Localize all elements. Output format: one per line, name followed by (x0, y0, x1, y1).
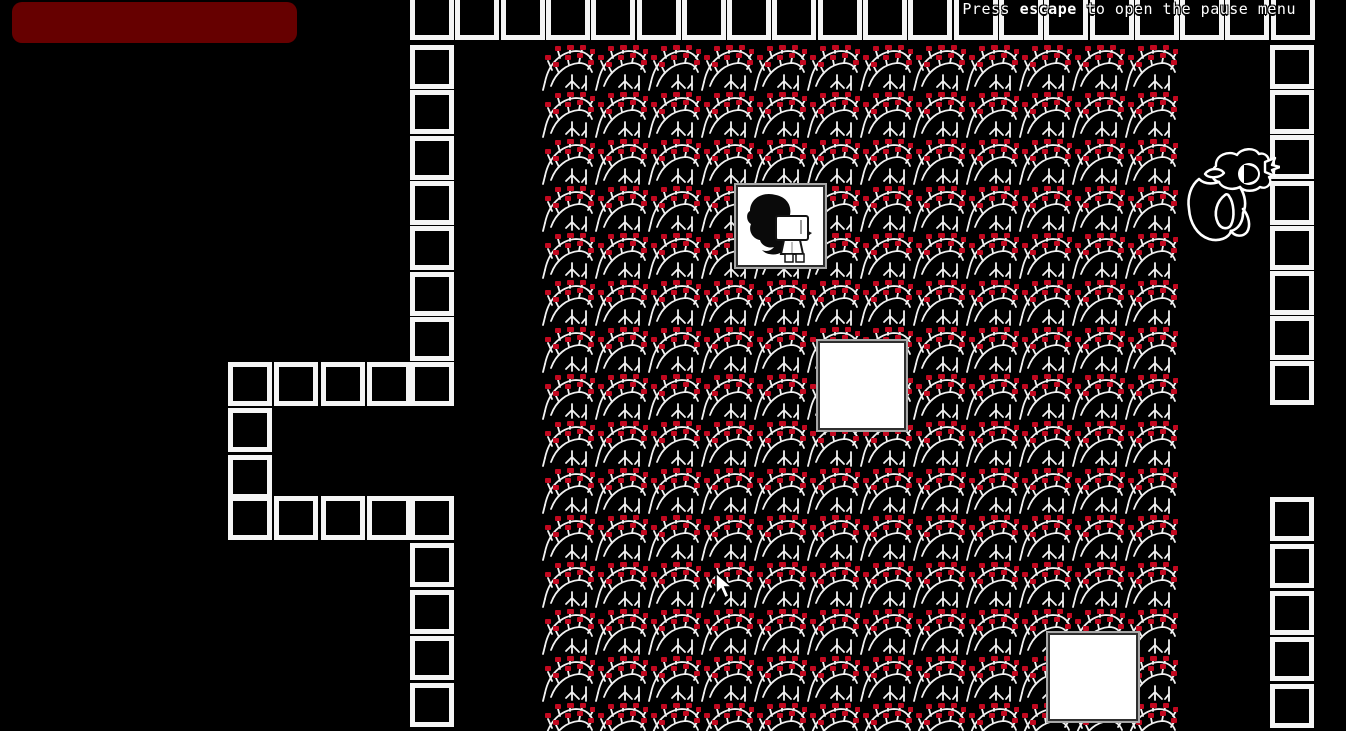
game-viewport[interactable]: { "screen": {"width": 1346, "height": 73… (0, 0, 1346, 731)
wall-tile-right-wall-upper (1270, 316, 1314, 360)
wall-tile-alcove-top-row (274, 362, 318, 406)
wall-tile-alcove-top-row (367, 362, 411, 406)
health-bar (12, 2, 297, 43)
wall-tile-alcove-left-column (228, 408, 272, 452)
wall-tile-right-wall-upper (1270, 361, 1314, 405)
pause-hint-key: escape (1020, 0, 1077, 18)
wall-tile-alcove-bottom-row (367, 496, 411, 540)
wall-tile-top-wall-row (546, 0, 590, 40)
wall-tile-left-wall-lower (410, 543, 454, 587)
wall-tile-left-wall-lower (410, 683, 454, 727)
wall-tile-alcove-bottom-row (274, 496, 318, 540)
pause-hint: Press escape to open the pause menu (962, 1, 1296, 18)
wall-tile-alcove-left-column (228, 455, 272, 499)
wall-tile-left-wall-upper (410, 362, 454, 406)
pause-hint-prefix: Press (962, 0, 1019, 18)
white-box-bottom[interactable] (1048, 633, 1138, 721)
wall-tile-top-wall-row (591, 0, 635, 40)
wall-tile-left-wall-upper (410, 272, 454, 316)
wall-tile-top-wall-row (908, 0, 952, 40)
wall-tile-left-wall-upper (410, 45, 454, 89)
wall-tile-top-wall-row (863, 0, 907, 40)
creature-sprite (1185, 145, 1280, 245)
wall-tile-left-wall-lower (410, 590, 454, 634)
wall-tile-right-wall-lower (1270, 591, 1314, 635)
player-foot (796, 254, 804, 262)
wall-tile-right-wall-lower (1270, 544, 1314, 588)
wall-tile-alcove-top-row (228, 362, 272, 406)
wall-tile-right-wall-lower (1270, 684, 1314, 728)
wall-tile-alcove-bottom-row (321, 496, 365, 540)
wall-tile-top-wall-row (410, 0, 454, 40)
white-box-middle[interactable] (818, 341, 906, 430)
wall-tile-right-wall-upper (1270, 45, 1314, 89)
wall-tile-right-wall-upper (1270, 271, 1314, 315)
wall-tile-top-wall-row (682, 0, 726, 40)
wall-tile-right-wall-lower (1270, 637, 1314, 681)
wall-tile-left-wall-upper (410, 181, 454, 225)
wall-tile-top-wall-row (637, 0, 681, 40)
player-face (776, 216, 808, 240)
wall-tile-left-wall-upper (410, 226, 454, 270)
wall-tile-top-wall-row (772, 0, 816, 40)
player-box[interactable] (736, 185, 825, 267)
player-character (738, 187, 823, 265)
wall-tile-top-wall-row (501, 0, 545, 40)
wall-tile-right-wall-lower (1270, 497, 1314, 541)
wall-tile-left-wall-lower (410, 496, 454, 540)
wall-tile-left-wall-upper (410, 136, 454, 180)
wall-tile-alcove-top-row (321, 362, 365, 406)
wall-tile-top-wall-row (455, 0, 499, 40)
pause-hint-suffix: to open the pause menu (1077, 0, 1296, 18)
wall-tile-right-wall-upper (1270, 90, 1314, 134)
wall-tile-top-wall-row (818, 0, 862, 40)
wall-tile-left-wall-upper (410, 90, 454, 134)
mouse-cursor (714, 572, 734, 600)
player-foot (785, 254, 793, 262)
wall-tile-left-wall-lower (410, 636, 454, 680)
wall-tile-left-wall-upper (410, 317, 454, 361)
wall-tile-alcove-bottom-row (228, 496, 272, 540)
wall-tile-top-wall-row (727, 0, 771, 40)
